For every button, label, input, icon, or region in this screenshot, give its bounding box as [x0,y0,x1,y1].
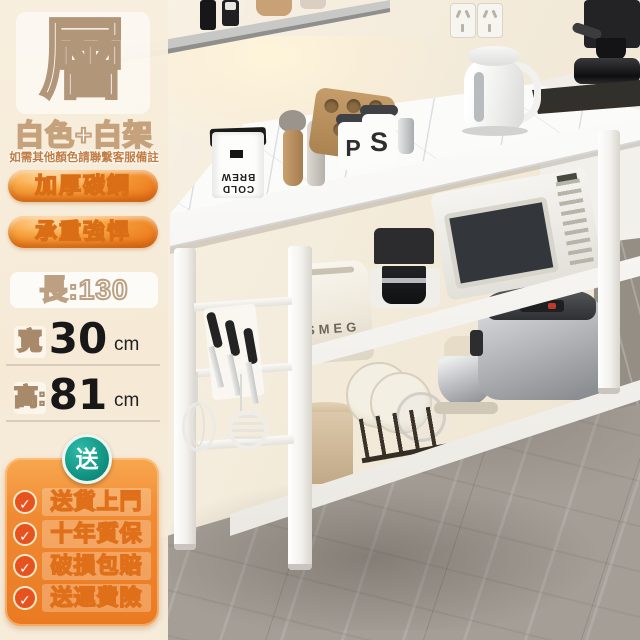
service-label: 破損包賠 [42,552,151,580]
service-row-damage: ✓ 破損包賠 [13,552,151,580]
feature-badge-load-bearing: 承重強悍 [8,216,158,248]
dimension-width-value: 30 [46,314,110,363]
service-row-shipping-insurance: ✓ 送運費險 [13,584,151,612]
kettle-lid [468,46,520,66]
divider [6,364,160,366]
spice-bottle [200,0,216,30]
coffee-bag-text: COLD [222,183,254,194]
promo-side-panel: 層 白色+白架 如需其他顏色請聯繫客服備註 加厚碳鋼 承重強悍 長:130 寬 … [0,0,168,640]
gift-badge: 送 [62,434,112,484]
color-variant-label: 白色+白架 [0,112,168,154]
utensil-hook-wire [196,372,198,406]
dimension-width-label: 寬 [14,326,46,358]
coffee-bag-logo [230,150,243,158]
wall-outlet [477,3,503,38]
pepper-grinder-cap [279,110,306,132]
wooden-jar [300,0,326,9]
tier-title: 層 [0,8,168,112]
color-note: 如需其他顏色請聯繫客服備註 [0,149,168,165]
coffee-carafe-band [382,278,426,283]
electric-kettle [464,58,524,130]
divider [6,420,160,422]
service-label: 送貨上門 [42,488,151,516]
hanging-skimmer [228,410,268,450]
check-icon: ✓ [13,522,37,546]
espresso-machine-base [574,58,640,84]
wooden-jar [256,0,292,16]
check-icon: ✓ [13,586,37,610]
microwave-window [443,196,559,289]
rice-cooker-indicator [548,303,556,309]
dimension-length: 長:130 [10,272,158,308]
rice-cooker-handle [470,330,483,356]
coffee-maker-top [374,228,434,264]
wall-outlet [450,3,476,38]
espresso-cup [596,38,626,60]
steel-shaker [398,118,414,154]
feature-badge-carbon-steel: 加厚碳鋼 [8,170,158,202]
table-mid-left-leg [288,246,312,570]
utensil-hook-wire [240,374,242,414]
product-photo-card: SMEG COLD BREW P S [0,0,640,640]
kettle-water-window [474,72,484,122]
salt-canister: S [362,114,396,166]
service-row-delivery: ✓ 送貨上門 [13,488,151,516]
kettle-base [462,126,528,136]
dimension-height-label: 高: [14,382,46,414]
service-label: 十年質保 [42,520,151,548]
service-label: 送運費險 [42,584,151,612]
coffee-carafe [382,266,426,304]
check-icon: ✓ [13,554,37,578]
table-floor-shadow [170,470,620,630]
table-front-right-leg [598,130,620,394]
check-icon: ✓ [13,490,37,514]
coffee-bag-text: BREW [221,171,256,182]
dimension-width-unit: cm [114,334,139,356]
microwave-buttons [556,178,595,269]
pepper-grinder [283,130,303,186]
table-front-left-leg [174,248,196,550]
spice-bottle [222,0,239,26]
service-row-warranty: ✓ 十年質保 [13,520,151,548]
dimension-height-value: 81 [46,370,110,419]
coffee-bag-label: COLD BREW [216,160,260,194]
dimension-height-unit: cm [114,390,139,412]
stand-mixer-base [434,402,498,414]
hanging-whisk [182,402,216,452]
